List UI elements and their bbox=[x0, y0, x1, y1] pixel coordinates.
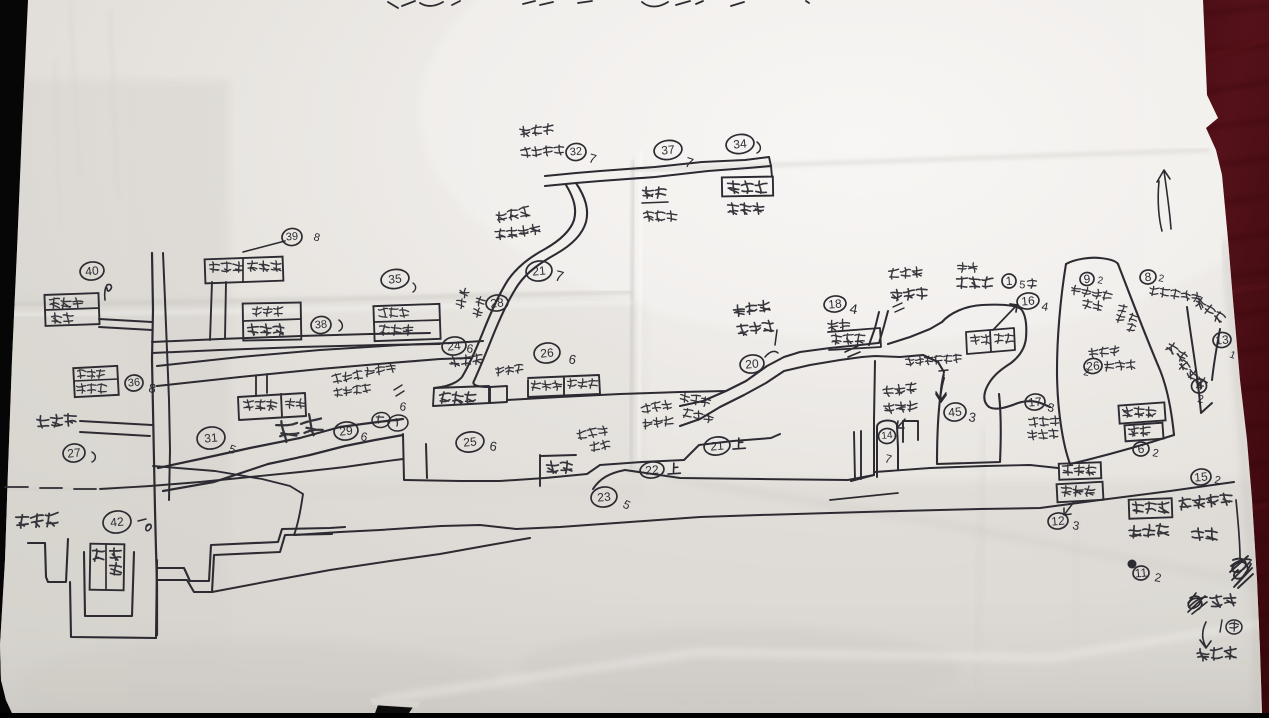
svg-text:37: 37 bbox=[661, 142, 676, 157]
svg-text:22: 22 bbox=[645, 462, 660, 477]
svg-text:18: 18 bbox=[828, 296, 843, 311]
svg-text:32: 32 bbox=[569, 145, 582, 158]
svg-text:31: 31 bbox=[204, 430, 219, 445]
svg-text:39: 39 bbox=[285, 230, 298, 243]
svg-text:15: 15 bbox=[1194, 469, 1209, 484]
svg-text:38: 38 bbox=[314, 318, 327, 331]
svg-text:23: 23 bbox=[597, 489, 612, 504]
svg-text:13: 13 bbox=[1215, 332, 1230, 347]
svg-text:28: 28 bbox=[490, 295, 505, 310]
svg-text:34: 34 bbox=[733, 136, 748, 151]
svg-text:11: 11 bbox=[1134, 565, 1148, 580]
svg-text:35: 35 bbox=[388, 271, 403, 286]
svg-text:17: 17 bbox=[1028, 394, 1043, 409]
svg-text:25: 25 bbox=[463, 434, 478, 449]
svg-text:40: 40 bbox=[85, 263, 100, 278]
svg-text:12: 12 bbox=[1051, 513, 1066, 528]
svg-text:14: 14 bbox=[881, 430, 893, 442]
svg-text:16: 16 bbox=[1021, 293, 1036, 308]
svg-text:21: 21 bbox=[532, 263, 547, 278]
svg-text:24: 24 bbox=[447, 338, 462, 353]
svg-text:20: 20 bbox=[745, 356, 760, 371]
svg-text:27: 27 bbox=[67, 445, 82, 460]
svg-text:42: 42 bbox=[110, 514, 125, 529]
svg-text:45: 45 bbox=[948, 404, 963, 419]
svg-text:29: 29 bbox=[339, 423, 354, 438]
svg-text:5: 5 bbox=[1019, 279, 1026, 291]
svg-text:26: 26 bbox=[540, 345, 555, 360]
svg-text:36: 36 bbox=[127, 376, 140, 389]
svg-text:21: 21 bbox=[710, 438, 725, 453]
